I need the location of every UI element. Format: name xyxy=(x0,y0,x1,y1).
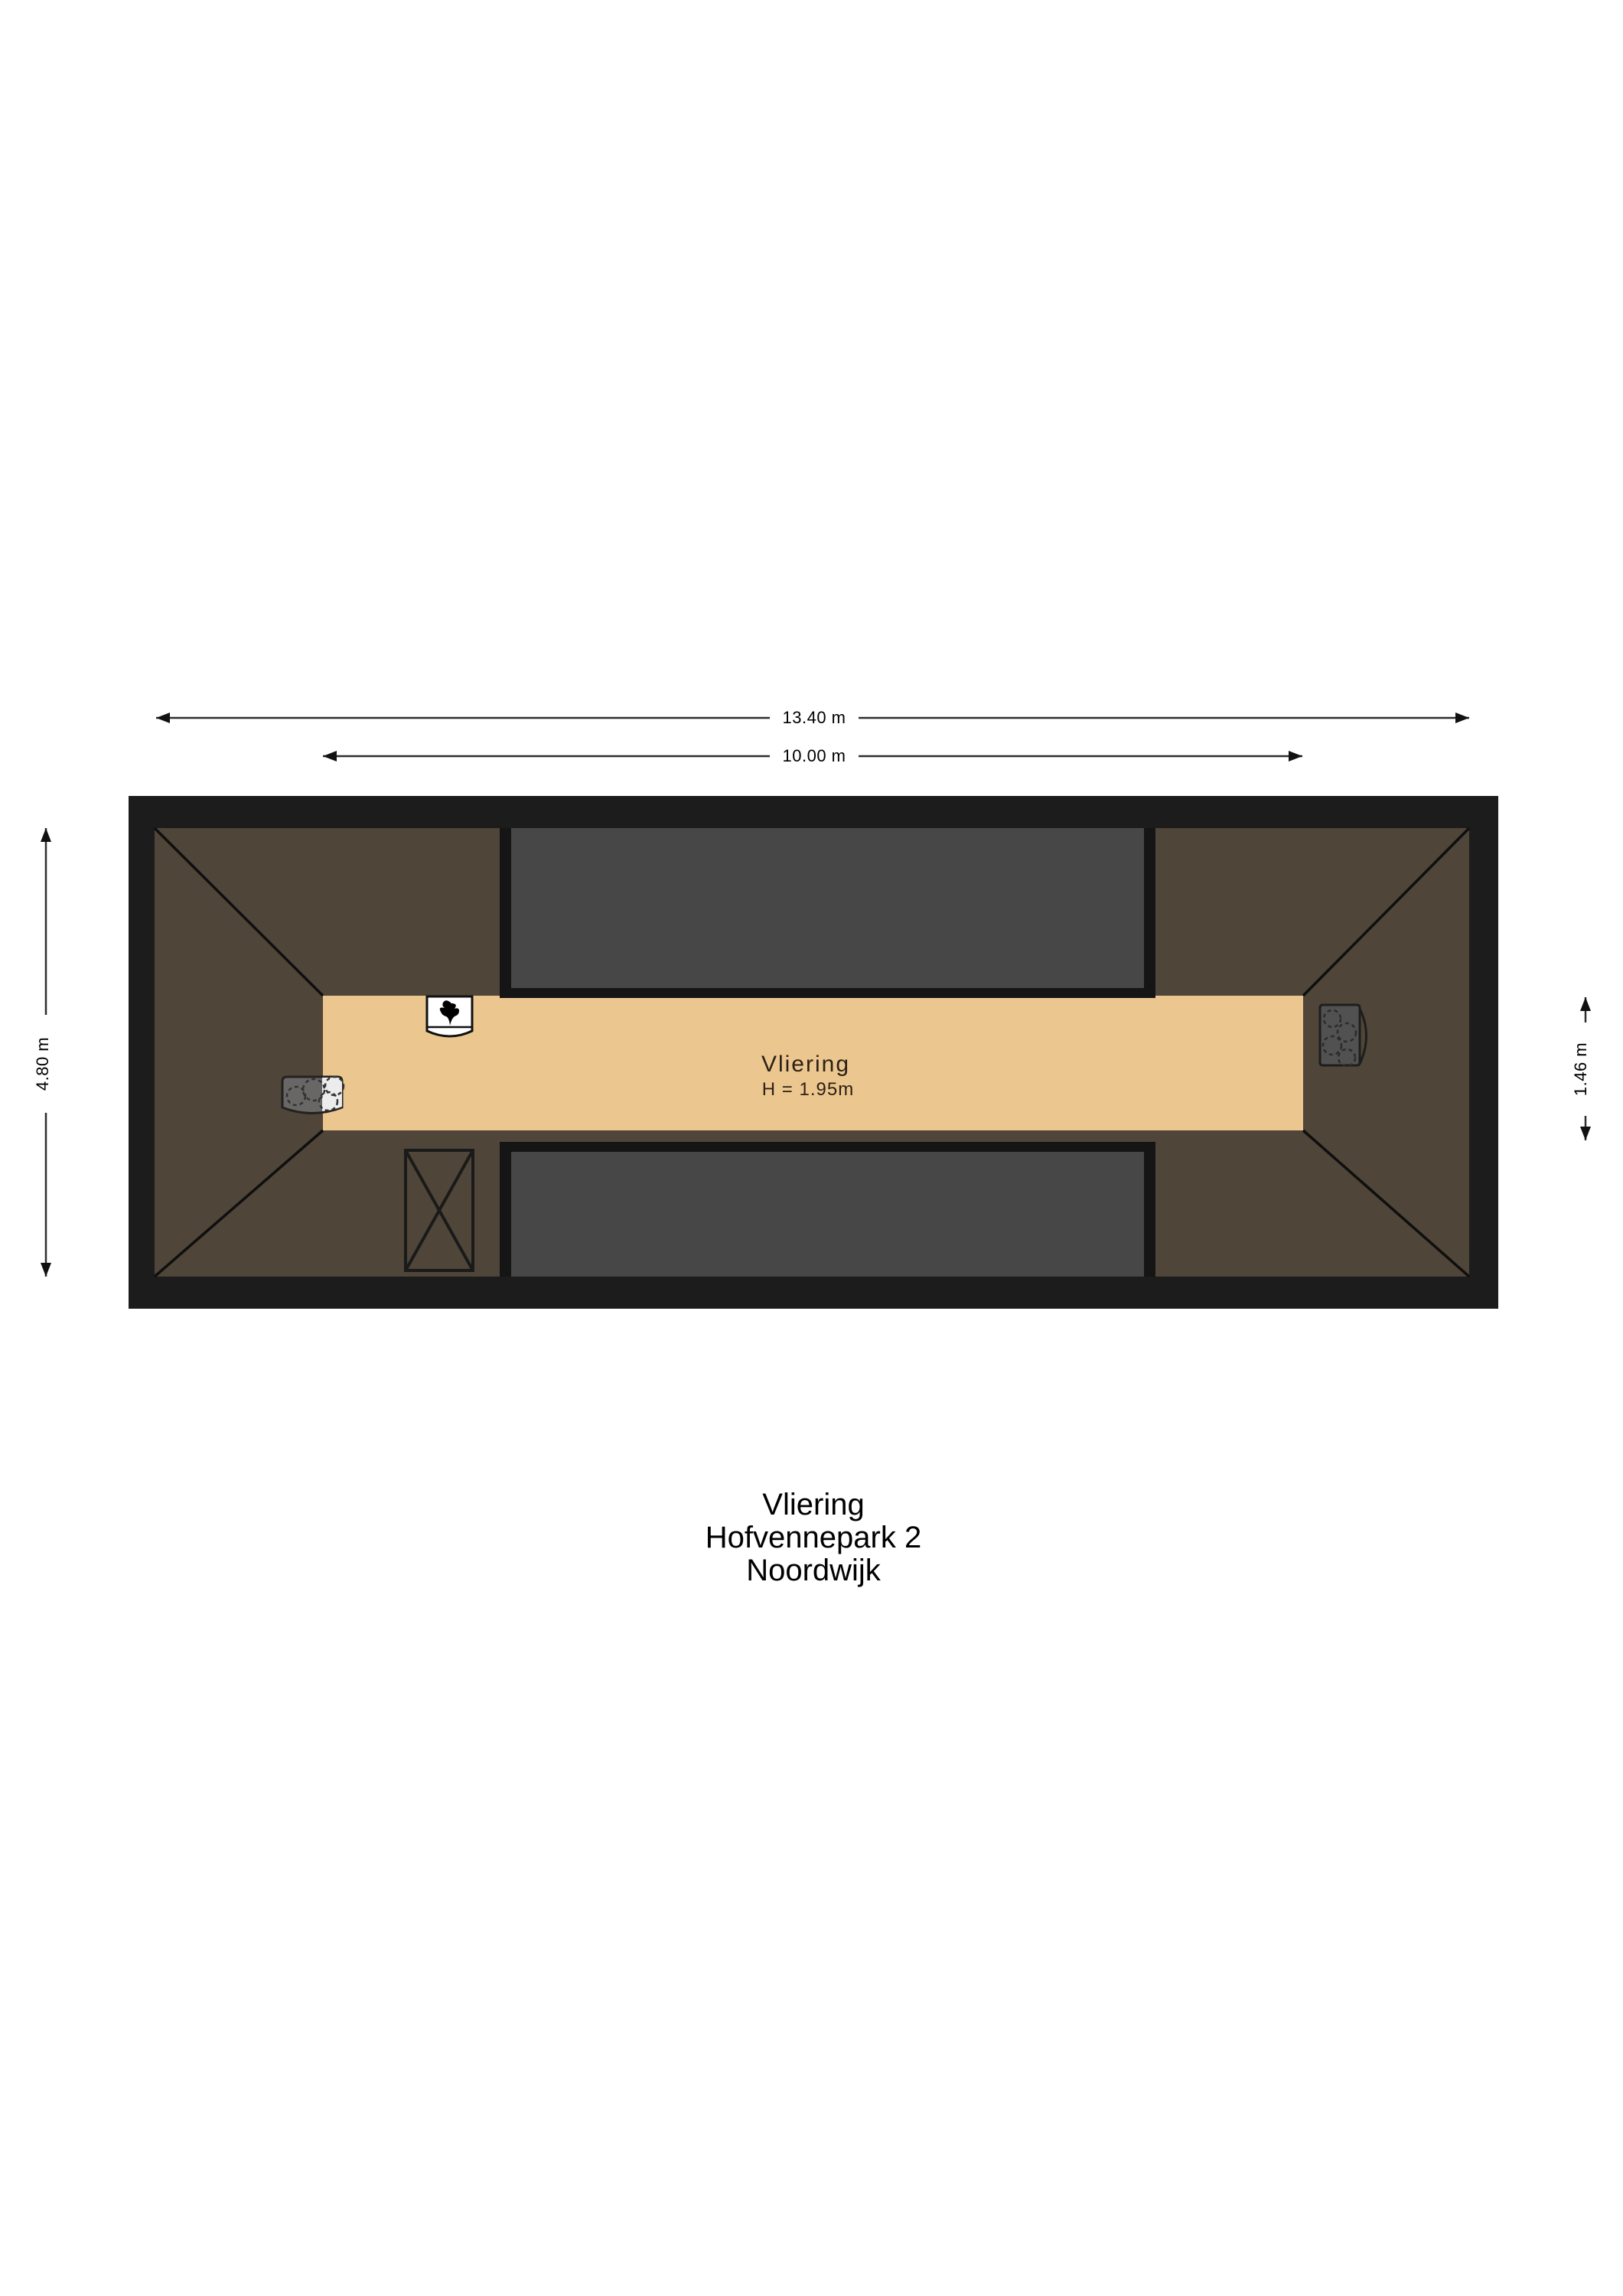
roof-window-bottom xyxy=(500,1142,1155,1277)
boiler-unit-left-icon xyxy=(282,1077,344,1114)
room-height-label: H = 1.95m xyxy=(762,1079,854,1101)
roof-window-top-glass xyxy=(511,828,1144,988)
title-floor-name: Vliering xyxy=(706,1489,921,1521)
title-city: Noordwijk xyxy=(706,1554,921,1587)
mechanical-ventilation-unit-icon xyxy=(427,996,472,1036)
dim-label-floor-width: 10.00 m xyxy=(783,746,846,766)
floorplan-drawing xyxy=(0,0,1623,2296)
dim-label-overall-width: 13.40 m xyxy=(783,708,846,728)
title-block: Vliering Hofvennepark 2 Noordwijk xyxy=(706,1489,921,1587)
title-address: Hofvennepark 2 xyxy=(706,1521,921,1554)
floorplan-page: 13.40 m 10.00 m 4.80 m 1.46 m Vliering H… xyxy=(0,0,1623,2296)
roof-window-top xyxy=(500,828,1155,998)
roof-window-bottom-glass xyxy=(511,1152,1144,1277)
boiler-unit-right-icon xyxy=(1320,1005,1367,1066)
dim-label-floor-depth: 1.46 m xyxy=(1571,1042,1591,1096)
dim-label-overall-depth: 4.80 m xyxy=(33,1037,53,1091)
room-name-label: Vliering xyxy=(761,1052,850,1078)
